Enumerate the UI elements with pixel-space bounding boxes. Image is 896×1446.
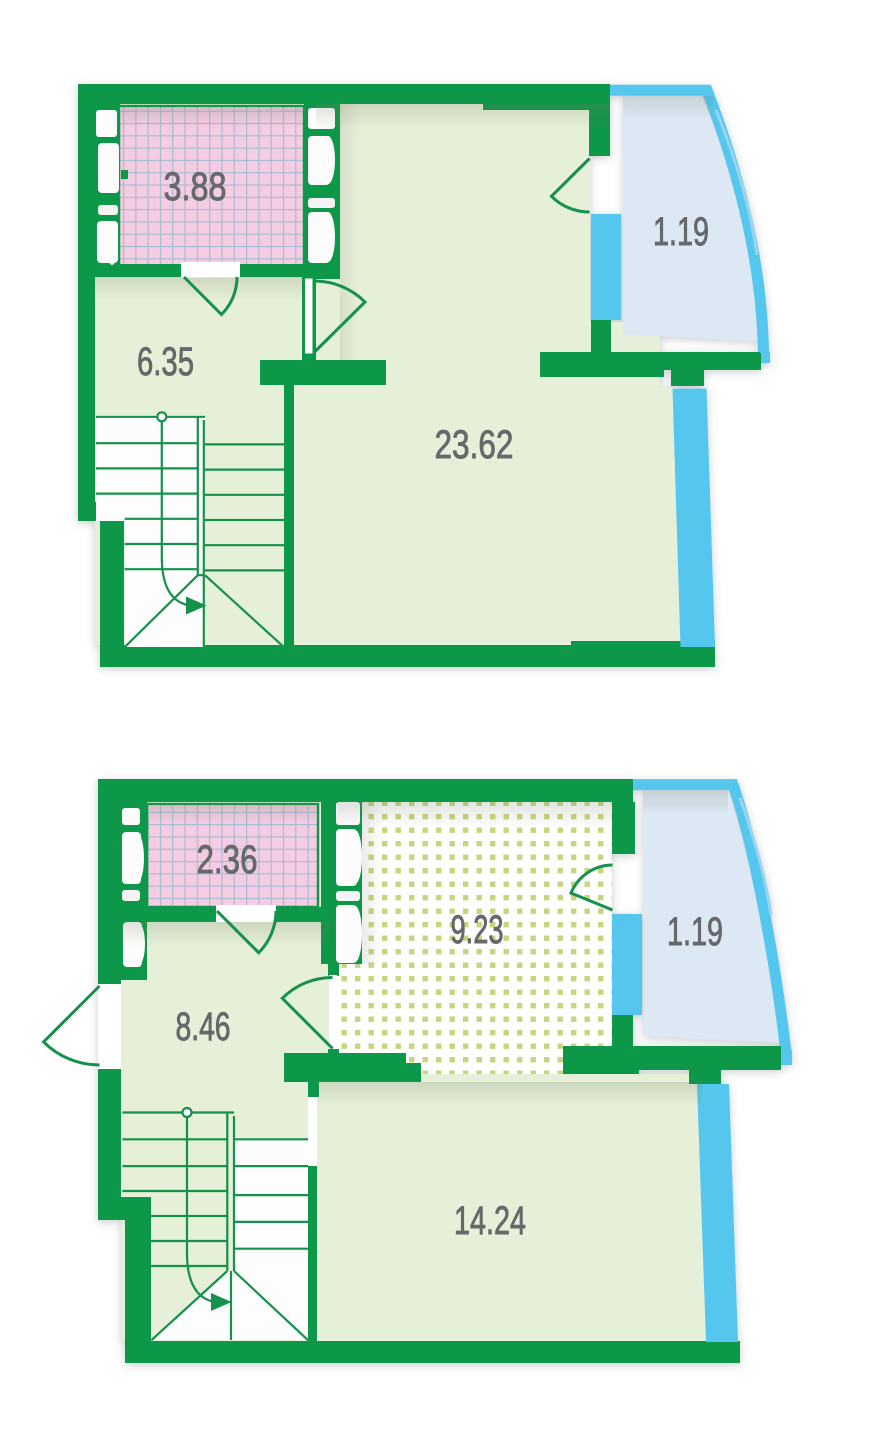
svg-text:2.36: 2.36 (197, 838, 258, 882)
svg-text:6.35: 6.35 (137, 340, 194, 384)
svg-text:23.62: 23.62 (435, 423, 514, 467)
svg-text:3.88: 3.88 (164, 165, 227, 209)
svg-text:14.24: 14.24 (454, 1199, 526, 1243)
svg-text:8.46: 8.46 (176, 1005, 231, 1049)
svg-text:9.23: 9.23 (451, 908, 504, 952)
svg-text:1.19: 1.19 (667, 910, 723, 954)
svg-text:1.19: 1.19 (653, 210, 709, 254)
